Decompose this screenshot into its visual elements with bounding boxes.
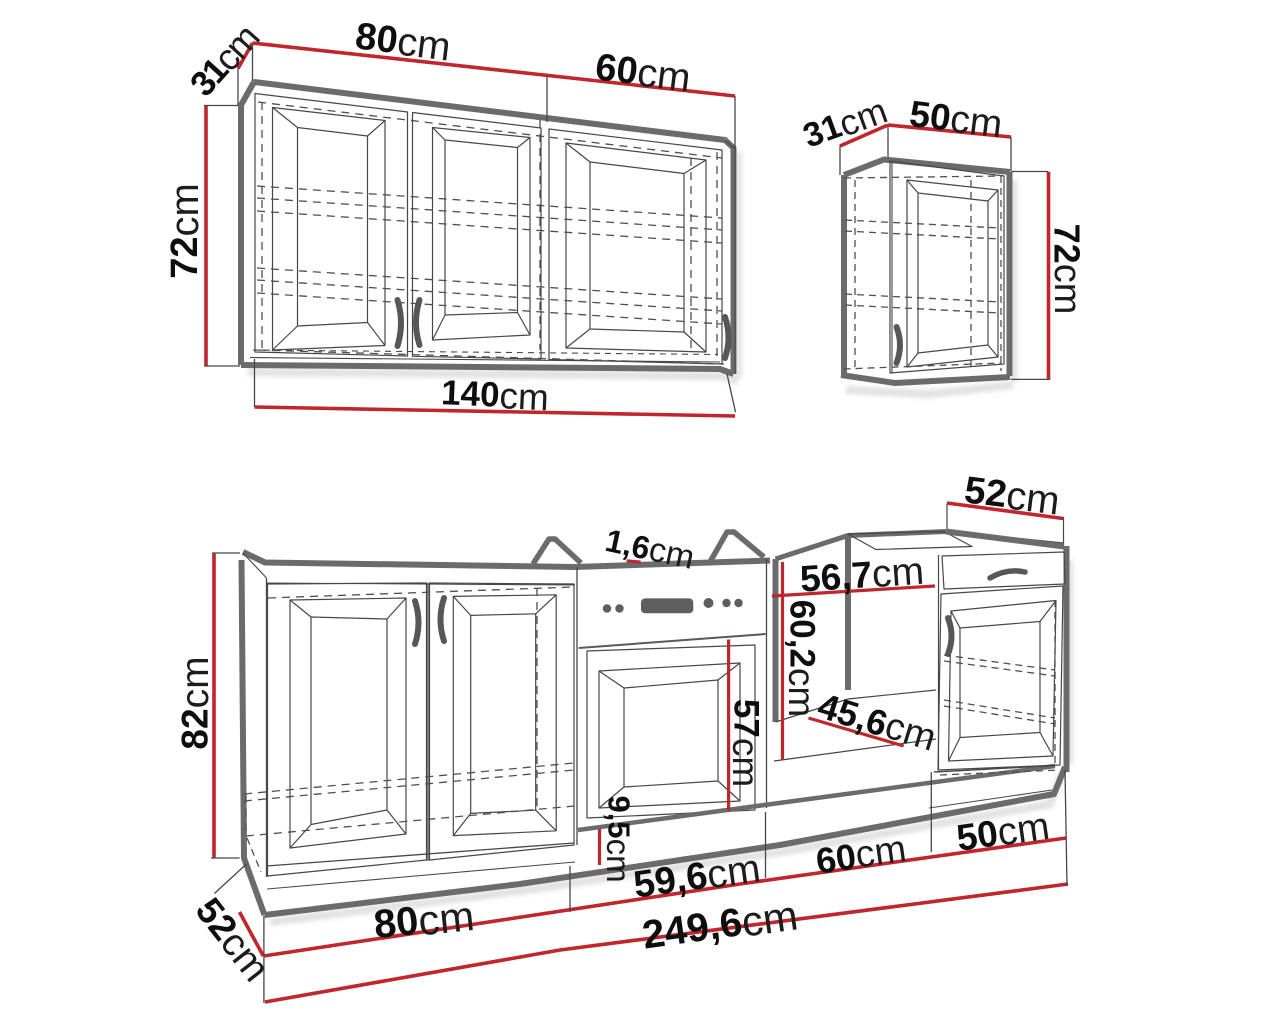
svg-text:72cm: 72cm — [1046, 224, 1088, 315]
svg-text:82cm: 82cm — [174, 656, 217, 749]
svg-text:57cm: 57cm — [726, 699, 767, 787]
svg-text:56,7cm: 56,7cm — [799, 549, 926, 601]
svg-text:60,2cm: 60,2cm — [782, 600, 823, 717]
svg-text:72cm: 72cm — [163, 183, 207, 279]
svg-text:140cm: 140cm — [440, 372, 549, 418]
